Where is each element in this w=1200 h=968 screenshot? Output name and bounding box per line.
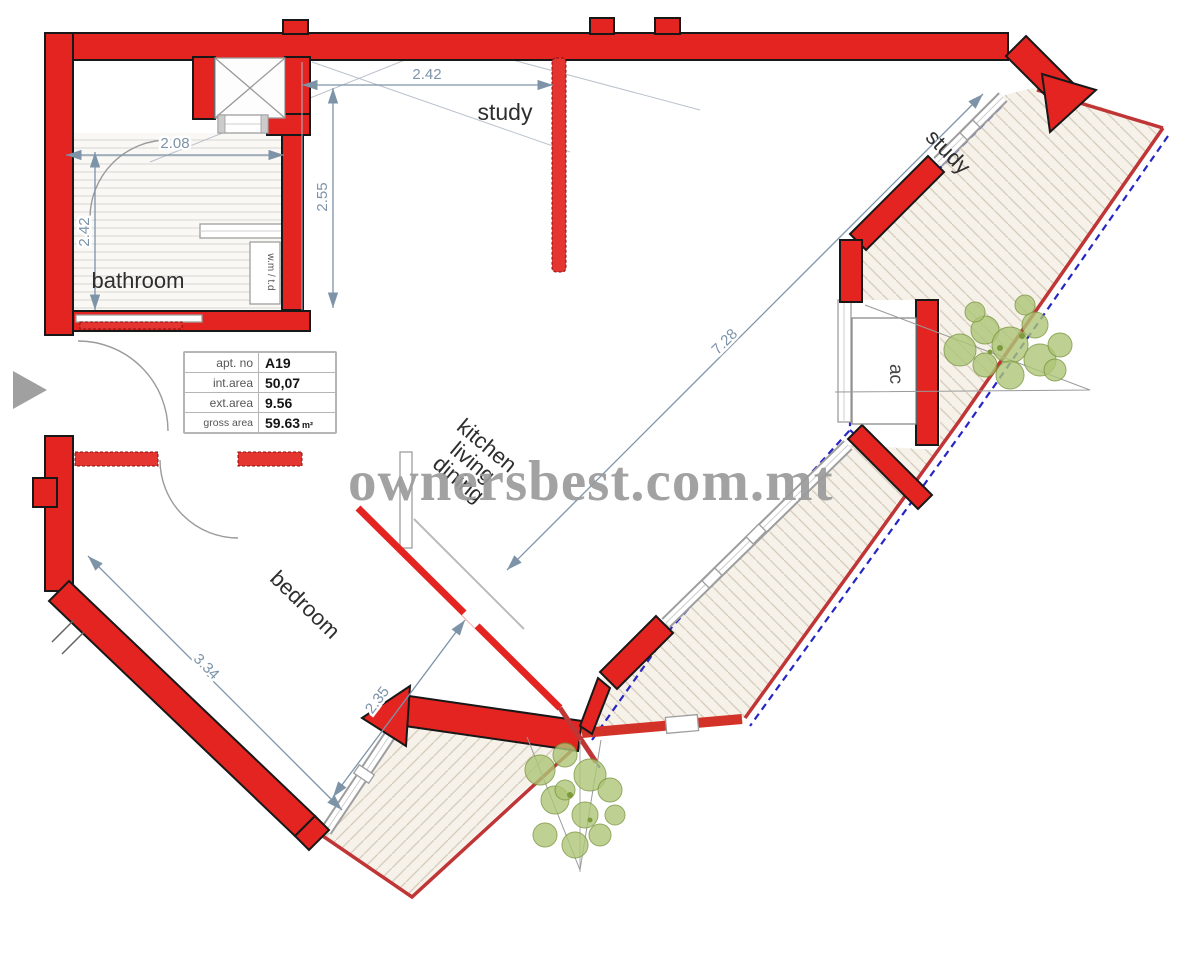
wall-bathroom-right [282, 135, 303, 310]
entrance-arrow-icon [13, 371, 47, 409]
room-label-study-top: study [478, 99, 533, 125]
table-row-value: A19 [259, 353, 293, 372]
wall-left-upper [45, 33, 73, 335]
bathroom-bottom-band [76, 315, 202, 322]
room-label-utility: w.m / t.d [265, 252, 276, 290]
wall-bedroom-kitchen [358, 508, 560, 708]
wall-bedroom-diagonal [49, 581, 315, 836]
room-label-bathroom: bathroom [92, 268, 185, 293]
dimension-label: 2.42 [412, 66, 441, 83]
table-row-value: 9.56 [259, 393, 294, 412]
wall-terrace-2 [840, 240, 862, 302]
table-row-value: 59.63m² [259, 413, 313, 432]
ac-window [838, 300, 851, 422]
table-row: apt. no A19 [185, 353, 335, 373]
plant-icon-bottom [525, 743, 625, 858]
wall-stub-3 [655, 18, 680, 34]
dimension-label: 2.08 [160, 135, 189, 152]
wall-ac-right [916, 300, 938, 445]
dimension-label: 2.42 [76, 217, 93, 246]
wall-left-lower [45, 436, 73, 591]
wall-top [45, 33, 1008, 60]
room-label-bedroom: bedroom [265, 565, 345, 643]
wall-kitchen-partition [552, 58, 566, 272]
wall-stub-2 [590, 18, 614, 34]
partition-gap [465, 612, 478, 625]
table-row-label: gross area [185, 413, 259, 432]
bedroom-partition-b [238, 452, 302, 466]
dimension-label: 3.34 [190, 650, 223, 683]
entrance-door-arc [78, 341, 168, 431]
table-row-value: 50,07 [259, 373, 302, 392]
table-row-label: int.area [185, 373, 259, 392]
bedroom-door-arc [160, 460, 238, 538]
info-table: apt. no A19 int.area 50,07 ext.area 9.56… [183, 351, 337, 434]
bedroom-partition-a [75, 452, 158, 466]
wall-left-notch [33, 478, 57, 507]
floor-plan-page: 2.42 2.55 2.08 2.42 7.28 3.34 2.35 bathr… [0, 0, 1200, 968]
table-row: int.area 50,07 [185, 373, 335, 393]
wall-shaft-left [193, 57, 215, 119]
room-label-ac: ac [885, 364, 906, 384]
terrace-end-window [665, 715, 698, 734]
dimension-label: 7.28 [708, 325, 741, 358]
table-row-label: ext.area [185, 393, 259, 412]
bathroom-bottom-thin [80, 322, 182, 329]
table-row: gross area 59.63m² [185, 413, 335, 432]
watermark: ownersbest.com.mt [348, 449, 834, 514]
table-row: ext.area 9.56 [185, 393, 335, 413]
dimension-label: 2.55 [314, 182, 331, 211]
bathroom-floor [73, 133, 290, 323]
table-row-label: apt. no [185, 353, 259, 372]
wall-stub-1 [283, 20, 308, 34]
